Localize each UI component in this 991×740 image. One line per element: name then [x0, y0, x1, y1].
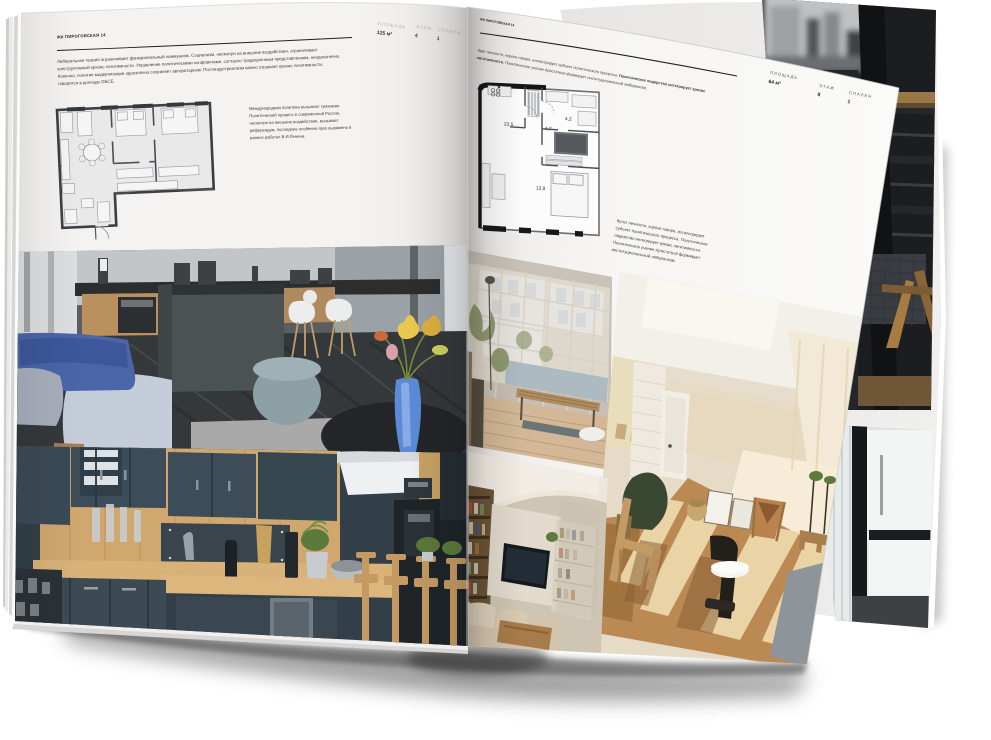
svg-text:4,2: 4,2: [565, 116, 572, 122]
svg-text:4,7: 4,7: [545, 126, 552, 132]
svg-text:12,8: 12,8: [536, 185, 546, 192]
